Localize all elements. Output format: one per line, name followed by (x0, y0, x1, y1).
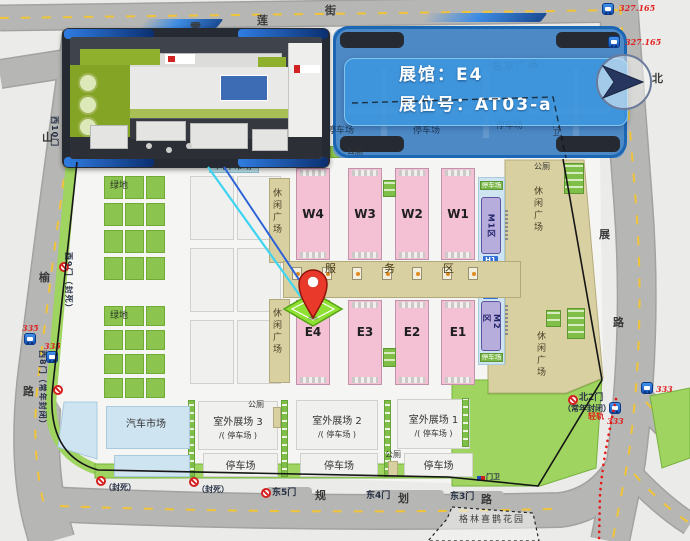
outdoor-area-name: 室外展场 2 (312, 417, 362, 427)
green-tile (125, 203, 144, 226)
toilet-building (388, 461, 398, 477)
green-tile (146, 306, 165, 326)
hall-W3: W3 (348, 168, 382, 260)
hall-E2: E2 (395, 300, 429, 385)
bus-wheel (648, 391, 650, 393)
hall-endcap (445, 377, 471, 383)
hedge-strip (281, 400, 288, 477)
ramp (567, 308, 585, 339)
hall-connector (383, 180, 396, 197)
no-entry-bar (191, 479, 196, 484)
label-gates-w9: 西9门（封死） (64, 252, 72, 313)
car-market-lot (190, 248, 234, 312)
entrance-marks-decoration (505, 210, 508, 240)
bus-wheel (31, 342, 33, 344)
no-entry-icon (568, 395, 578, 405)
no-entry-icon (261, 488, 271, 498)
label-streets-left-2: 路 (23, 386, 34, 397)
hall-W1: W1 (441, 168, 475, 260)
parking-label: 停车场 (226, 462, 256, 472)
label-labels-leisure: 休闲广场 (271, 308, 280, 356)
hall-endcap (352, 252, 378, 258)
label-streets-right-0: 展 (599, 229, 610, 240)
label-streets-right-1: 路 (613, 317, 624, 328)
no-entry-bar (98, 478, 103, 483)
green-tile (104, 354, 123, 374)
green-tile (104, 378, 123, 398)
hall-endcap (352, 170, 378, 176)
m-zone-parking-top: 停车场 (480, 181, 503, 190)
photo-counter (136, 121, 186, 141)
photo-product-disc (78, 95, 98, 115)
hall-endcap (300, 302, 326, 308)
car-market-lot (190, 176, 234, 240)
label-car_market-bottom_label: 汽车市场 (126, 420, 166, 430)
bus-wheel (615, 45, 617, 47)
label-gates-w10: 西10门 (50, 116, 58, 147)
photo-counter (90, 125, 128, 149)
hall-endcap (445, 302, 471, 308)
bus-stop-icon (24, 333, 36, 345)
label-gates-sealed1: （封死） (104, 484, 136, 492)
outdoor-area-2: 室外展场 2/( 停车场 ) (296, 400, 378, 450)
bus-route-label: 333 (656, 385, 673, 393)
green-tile (125, 330, 144, 350)
hall-endcap (399, 252, 425, 258)
hall-E3: E3 (348, 300, 382, 385)
outdoor-parking-1: 停车场 (404, 453, 473, 477)
photo-chair (166, 147, 172, 153)
bus-route-label: 327.165 (619, 4, 655, 12)
hall-label: W2 (396, 207, 428, 221)
hall-connector (383, 348, 396, 367)
outdoor-area-sub: /( 停车场 ) (414, 430, 452, 438)
parking-label: 停车场 (324, 462, 354, 472)
green-tile (146, 230, 165, 253)
bus-route-label: 333 (607, 417, 624, 425)
bus-route-label: 327.165 (625, 38, 661, 46)
bus-glyph (49, 355, 55, 359)
hall-label: E4 (297, 325, 329, 339)
hall-endcap (352, 377, 378, 383)
bus-wheel (612, 411, 614, 413)
bus-wheel (616, 411, 618, 413)
hall-E4: E4 (296, 300, 330, 385)
north-arrow-icon (598, 56, 650, 108)
no-entry-icon (53, 385, 63, 395)
photo-chair (186, 143, 192, 149)
label-streets-top-2: 街 (325, 5, 336, 16)
bus-stop-icon (46, 351, 58, 363)
label-labels-leisure: 休闲广场 (532, 186, 541, 234)
building-m1-label: M1区 (486, 213, 497, 238)
bus-glyph (605, 7, 611, 11)
overlay-corner (556, 136, 620, 152)
no-entry-icon (96, 476, 106, 486)
green-tile (125, 257, 144, 280)
label-labels-light_rail: 轻轨 (588, 413, 604, 421)
bus-route-label: 335 (44, 342, 61, 350)
hall-endcap (300, 377, 326, 383)
label-labels-service: 服务区 (325, 263, 502, 274)
hall-endcap (399, 302, 425, 308)
label-gates-e5: 东5门 (272, 489, 296, 498)
decorative-speedline (420, 13, 547, 22)
label-labels-toilet: 公厕 (347, 148, 363, 156)
label-labels-toilet: 公厕 (534, 163, 550, 171)
kiosk-dot-icon (296, 272, 300, 276)
no-entry-icon (59, 262, 69, 272)
bus-wheel (27, 342, 29, 344)
no-entry-bar (61, 264, 66, 269)
label-labels-green_space: 绿地 (110, 312, 128, 321)
label-gates-guard_bottom: 门卫 (486, 474, 500, 481)
bus-glyph (644, 386, 650, 390)
label-gates-e4: 东4门 (366, 492, 390, 501)
booth-photo (70, 37, 322, 159)
entrance-marks-decoration (505, 305, 508, 335)
label-labels-leisure: 休闲广场 (535, 331, 544, 379)
outdoor-area-name: 室外展场 1 (409, 416, 459, 426)
label-gates-n2: 北2门 (579, 394, 603, 403)
parking-label: 停车场 (424, 462, 454, 472)
label-plaza-parking-0: 停车场 (327, 127, 354, 136)
outdoor-parking-3: 停车场 (203, 453, 278, 477)
building-m1: M1区 (481, 197, 501, 254)
compass (596, 54, 652, 110)
label-plaza-parking-1: 停车场 (413, 127, 440, 136)
green-tile (104, 203, 123, 226)
hall-endcap (445, 252, 471, 258)
info-banner: 展馆：E4 展位号：AT03-a (344, 58, 628, 126)
photo-logo-mark (294, 65, 320, 73)
outdoor-area-3: 室外展场 3/( 停车场 ) (198, 401, 278, 450)
green-tile (125, 230, 144, 253)
hall-endcap (445, 170, 471, 176)
hall-E1: E1 (441, 300, 475, 385)
bus-route-label: 335 (22, 324, 39, 332)
bus-stop-icon (608, 36, 620, 48)
photo-counter (252, 129, 288, 151)
label-streets-left-1: 榆 (39, 272, 50, 283)
label-gates-sealed2: （封死） (197, 486, 229, 494)
bus-stop-icon (609, 402, 621, 414)
hedge-strip (462, 398, 469, 447)
service-kiosk (292, 267, 302, 280)
decorative-speedline (138, 19, 223, 28)
hall-label: E1 (442, 325, 474, 339)
label-streets-bottom-2: 路 (481, 494, 492, 505)
toilet-building (273, 407, 281, 428)
no-entry-icon (189, 477, 199, 487)
label-streets-bottom-1: 划 (398, 493, 409, 504)
bus-wheel (609, 12, 611, 14)
hall-label: W1 (442, 207, 474, 221)
green-tile (125, 354, 144, 374)
no-entry-bar (55, 387, 60, 392)
north-label: 北 (652, 73, 663, 84)
hall-endcap (352, 302, 378, 308)
hall-label: W4 (297, 207, 329, 221)
green-tile (104, 257, 123, 280)
no-entry-bar (570, 397, 575, 402)
photo-green-band (130, 109, 288, 118)
outdoor-area-sub: /( 停车场 ) (219, 432, 257, 440)
green-tile (104, 330, 123, 350)
bus-wheel (611, 45, 613, 47)
hall-endcap (300, 252, 326, 258)
hall-endcap (399, 377, 425, 383)
hall-line: 展馆：E4 (399, 67, 483, 84)
bus-glyph (27, 337, 33, 341)
hall-W2: W2 (395, 168, 429, 260)
label-labels-toilet: 公厕 (248, 401, 264, 409)
label-labels-toilet: 公厕 (385, 451, 401, 459)
label-gates-w8: 西8门（常年封闭） (38, 350, 46, 429)
bus-wheel (49, 360, 51, 362)
bus-glyph (611, 40, 617, 44)
green-tile (125, 378, 144, 398)
hall-endcap (300, 170, 326, 176)
label-labels-leisure: 休闲广场 (271, 188, 280, 236)
building-m2-label: M2区 (481, 314, 501, 338)
bus-wheel (644, 391, 646, 393)
venue-map: W4W3W2W1E4E3E2E1室外展场 3/( 停车场 )室外展场 2/( 停… (0, 0, 690, 541)
outdoor-area-sub: /( 停车场 ) (318, 431, 356, 439)
car-market-lot (190, 320, 234, 384)
bus-stop-icon (602, 3, 614, 15)
label-gates-e3: 东3门 (450, 493, 474, 502)
bus-stop-icon (641, 382, 653, 394)
bus-wheel (53, 360, 55, 362)
bus-glyph (612, 406, 618, 410)
green-tile (146, 176, 165, 199)
hall-endcap (399, 170, 425, 176)
guard-post-icon (477, 476, 485, 481)
hall-label: W3 (349, 207, 381, 221)
green-tile (146, 203, 165, 226)
photo-screen (220, 75, 268, 101)
bus-wheel (605, 12, 607, 14)
parking-block (114, 455, 190, 477)
hall-label: E3 (349, 325, 381, 339)
label-labels-green_space: 绿地 (110, 182, 128, 191)
booth-line: 展位号：AT03-a (399, 97, 553, 114)
no-entry-bar (263, 490, 268, 495)
photo-logo-mark (168, 56, 175, 62)
photo-chair (146, 143, 152, 149)
green-tile (146, 330, 165, 350)
photo-product-disc (78, 73, 98, 93)
label-streets-top-1: 莲 (257, 15, 268, 26)
outdoor-area-1: 室外展场 1/( 停车场 ) (397, 399, 470, 449)
green-tile (104, 230, 123, 253)
hall-W4: W4 (296, 168, 330, 260)
m-zone-parking-bottom: 停车场 (480, 353, 503, 362)
hall-label: E2 (396, 325, 428, 339)
booth-photo-inset (62, 28, 330, 168)
green-tile (146, 354, 165, 374)
label-streets-bottom-0: 规 (315, 490, 326, 501)
building-m2: M2区 (481, 301, 501, 351)
ramp (546, 310, 561, 327)
green-tile (146, 257, 165, 280)
photo-fascia-left (80, 49, 160, 65)
overlay-corner (340, 32, 404, 48)
ramp (564, 163, 584, 194)
outdoor-parking-2: 停车场 (300, 453, 378, 477)
green-tile (146, 378, 165, 398)
outdoor-area-name: 室外展场 3 (213, 418, 263, 428)
photo-counter (190, 123, 248, 149)
label-labels-garden: 格林喜鹊花园 (459, 516, 525, 525)
